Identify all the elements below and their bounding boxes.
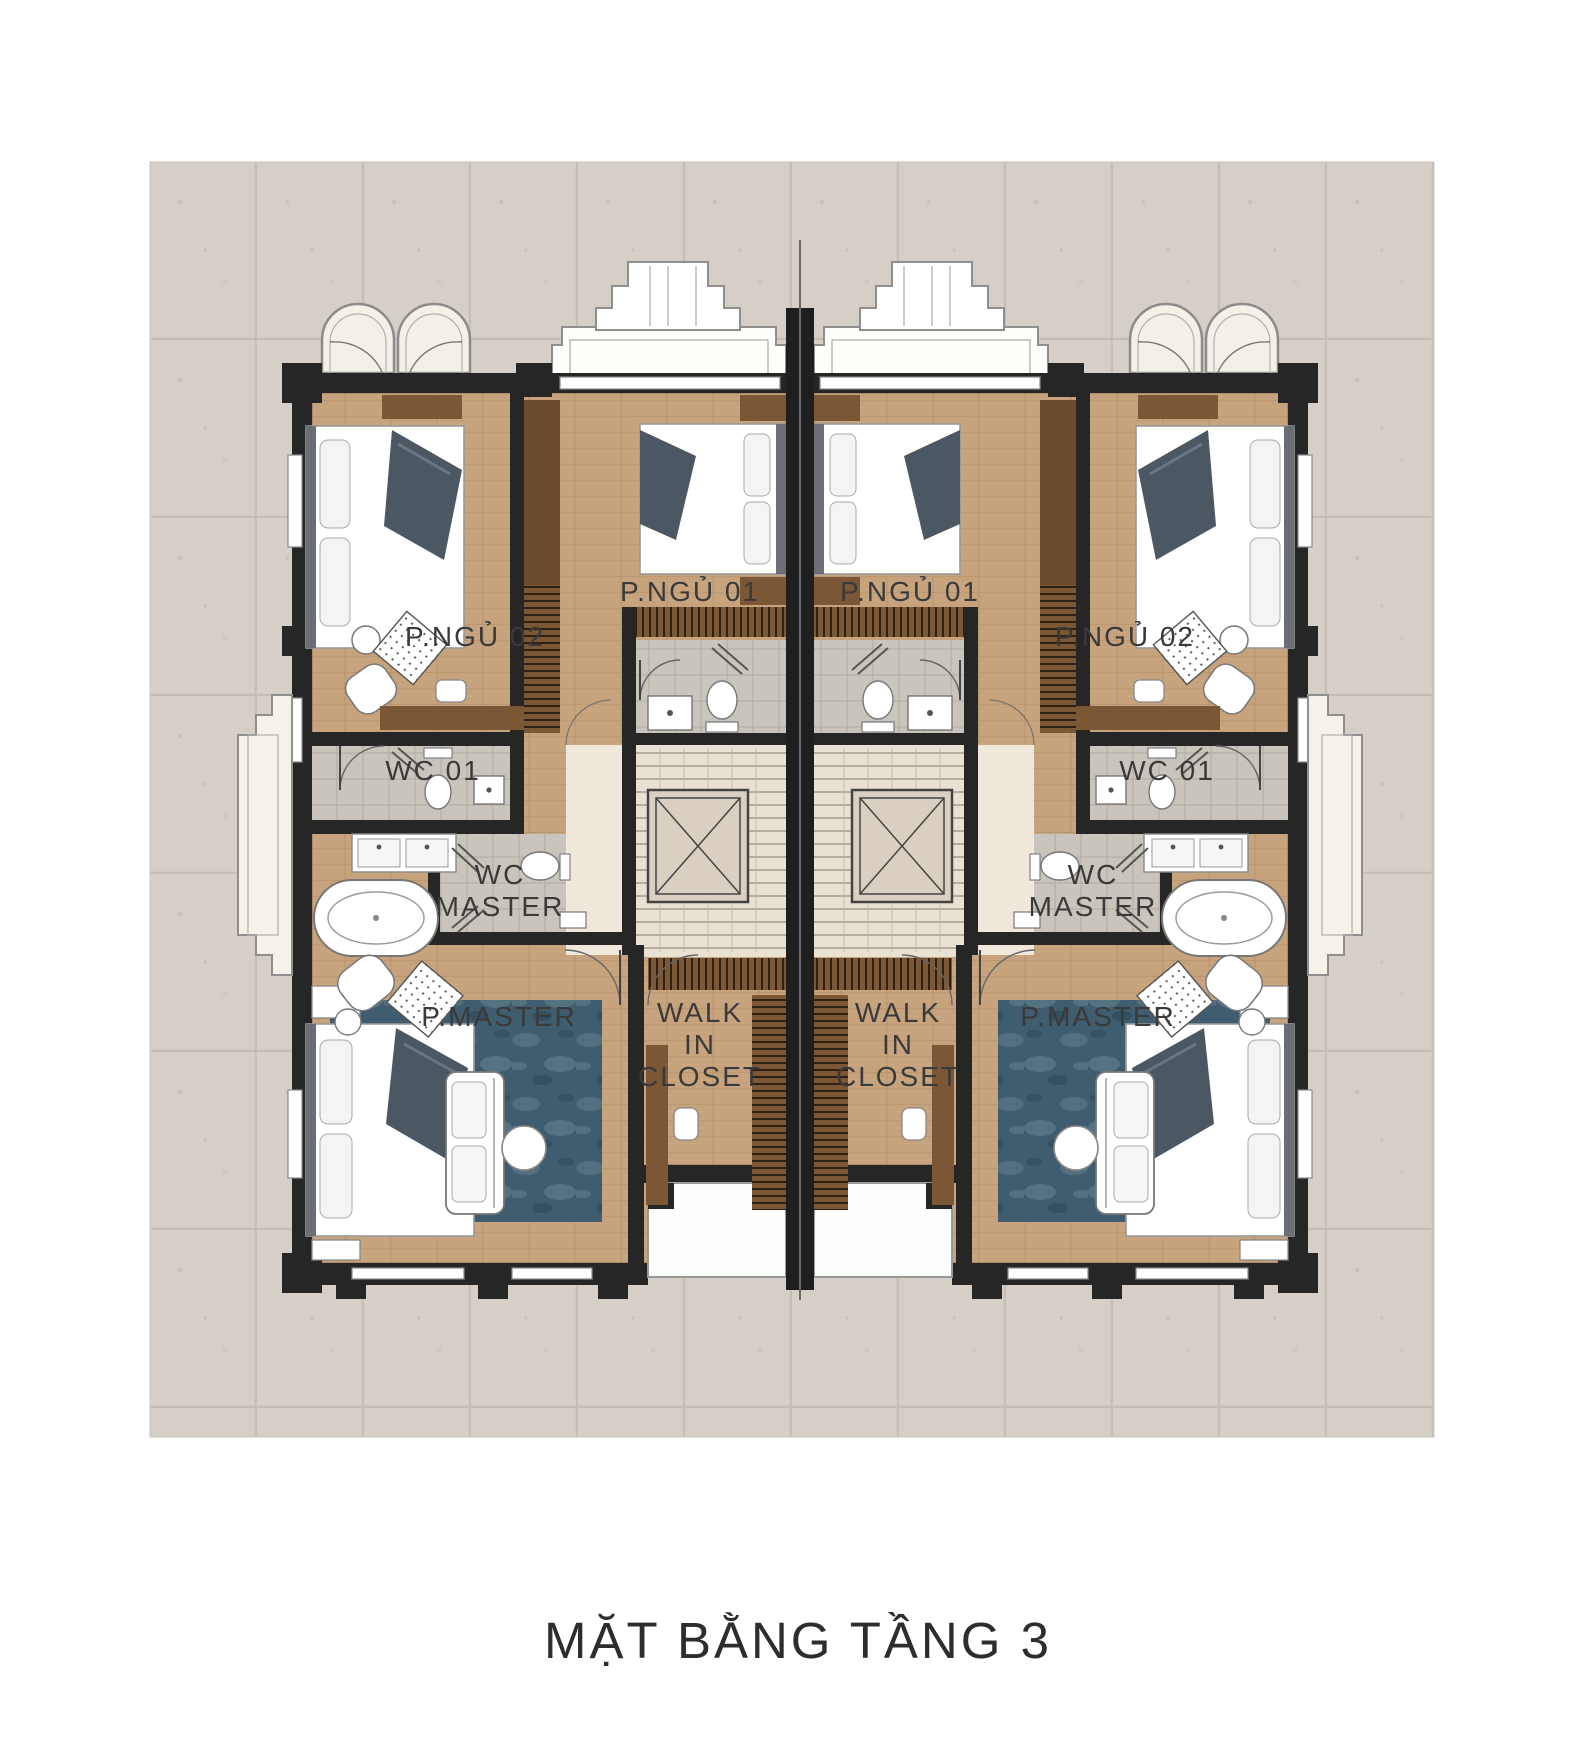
floor-plan-page: P.NGỦ 02 P.NGỦ 01 P.NGỦ 01 P.NGỦ 02 WC 0… — [0, 0, 1596, 1745]
floor-plan-canvas: P.NGỦ 02 P.NGỦ 01 P.NGỦ 01 P.NGỦ 02 WC 0… — [0, 0, 1596, 1745]
label-wcmaster-left-2: MASTER — [436, 891, 565, 922]
unit-right — [814, 262, 1362, 1299]
label-walkin-right-2: IN — [882, 1029, 914, 1060]
page-title: MẶT BẰNG TẦNG 3 — [544, 1611, 1052, 1669]
label-wcmaster-right-1: WC — [1068, 859, 1119, 890]
label-bedroom2-left: P.NGỦ 02 — [405, 620, 545, 652]
label-bedroom1-right: P.NGỦ 01 — [840, 575, 980, 607]
label-wcmaster-left-1: WC — [475, 859, 526, 890]
label-wc01-left: WC 01 — [385, 755, 481, 786]
label-bedroom2-right: P.NGỦ 02 — [1055, 620, 1195, 652]
party-wall — [786, 240, 814, 1300]
label-bedroom1-left: P.NGỦ 01 — [620, 575, 760, 607]
label-wc01-right: WC 01 — [1119, 755, 1215, 786]
label-wcmaster-right-2: MASTER — [1029, 891, 1158, 922]
label-walkin-right-3: CLOSET — [836, 1061, 960, 1092]
label-walkin-right-1: WALK — [855, 997, 941, 1028]
label-pmaster-right: P.MASTER — [1020, 1001, 1176, 1032]
label-walkin-left-1: WALK — [657, 997, 743, 1028]
unit-left — [238, 262, 786, 1299]
label-pmaster-left: P.MASTER — [421, 1001, 577, 1032]
label-walkin-left-2: IN — [684, 1029, 716, 1060]
label-walkin-left-3: CLOSET — [638, 1061, 762, 1092]
